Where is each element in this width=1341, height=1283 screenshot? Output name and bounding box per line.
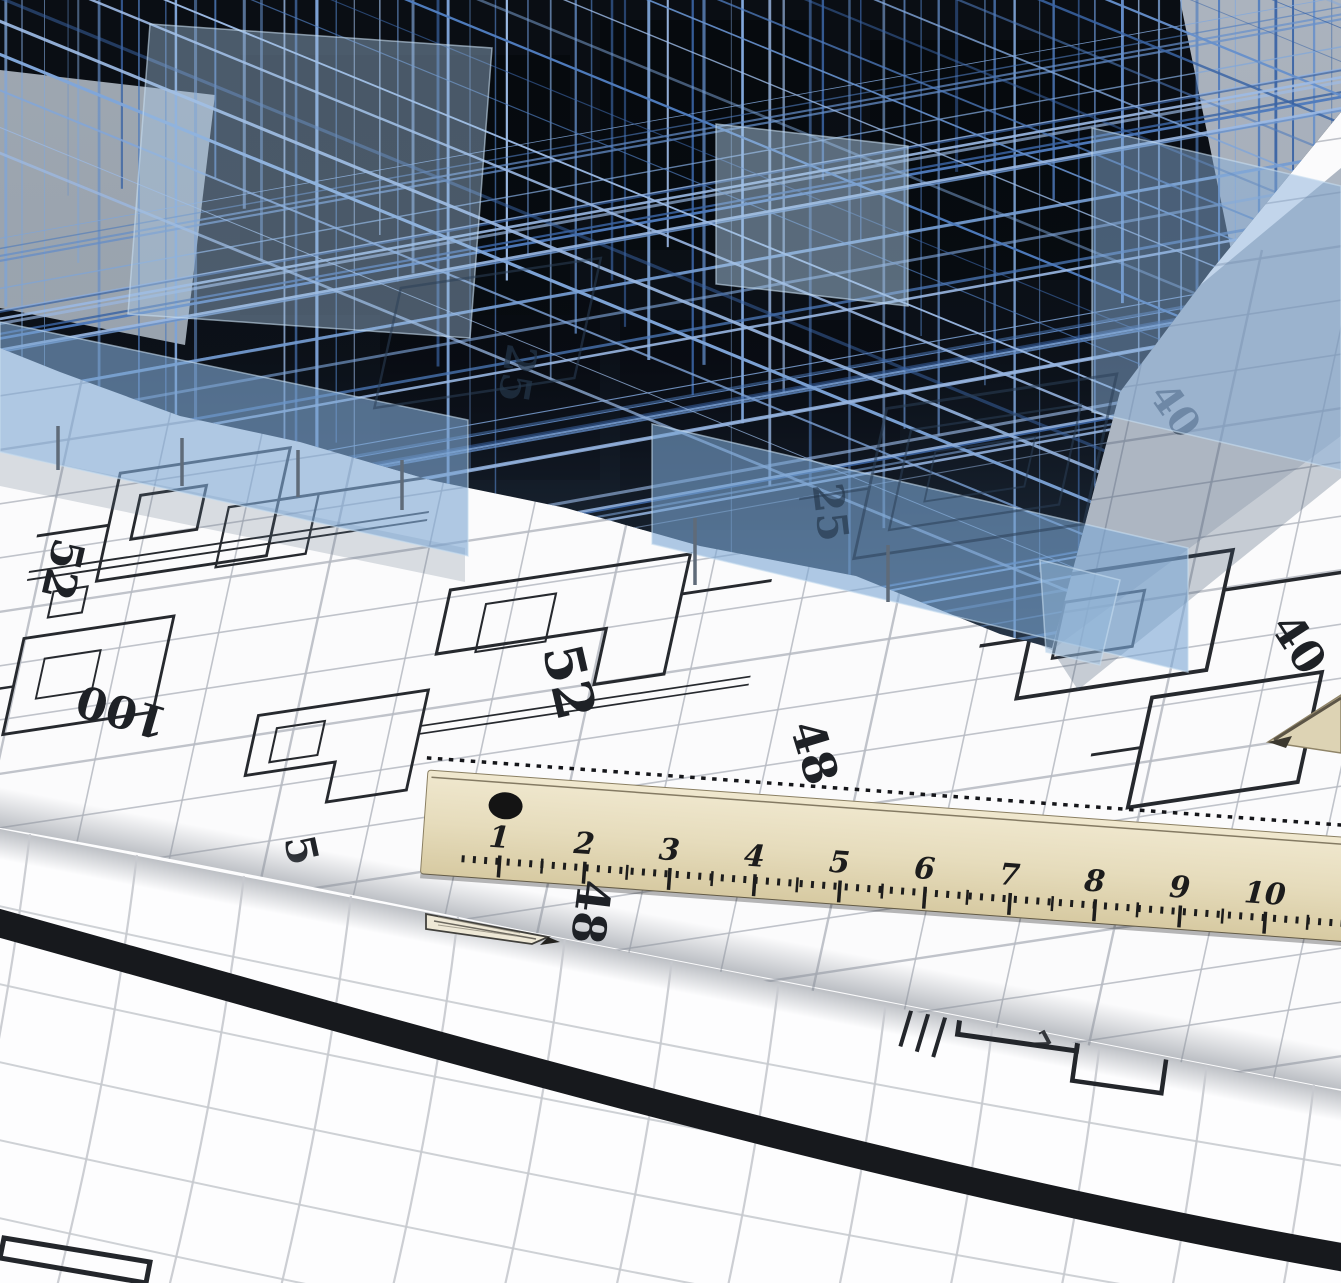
- glass-panel: [1092, 128, 1341, 470]
- dimension-label: 25: [803, 480, 859, 544]
- ruler-number: 6: [913, 851, 937, 887]
- ruler-number: 3: [658, 832, 681, 868]
- ruler-number: 7: [998, 857, 1022, 893]
- ruler-number: 9: [1168, 870, 1192, 906]
- blueprint-scene-image: 52100524840405: [0, 0, 1341, 1283]
- dimension-label: 48: [560, 877, 621, 947]
- ruler-number: 4: [743, 838, 766, 874]
- glass-panel: [716, 124, 908, 306]
- ruler-number: 10: [1243, 875, 1287, 913]
- ruler-number: 8: [1082, 863, 1107, 900]
- ruler-number: 1: [488, 820, 511, 856]
- ruler-number: 5: [828, 845, 851, 881]
- blueprint-scene: 52100524840405: [0, 0, 1341, 1283]
- glass-panel: [128, 24, 492, 338]
- dimension-label: 25: [488, 340, 546, 406]
- ruler-number: 2: [572, 826, 596, 863]
